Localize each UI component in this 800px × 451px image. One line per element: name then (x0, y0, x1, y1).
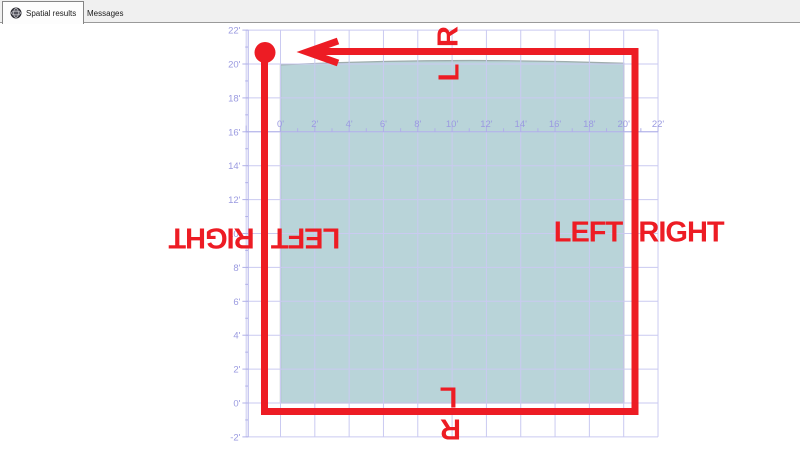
tab-messages-label: Messages (87, 9, 123, 18)
svg-text:20': 20' (618, 119, 631, 130)
svg-text:12': 12' (480, 119, 493, 130)
ring-side-label-left-outside: RIGHT (169, 223, 254, 252)
svg-text:20': 20' (228, 60, 241, 71)
svg-text:8': 8' (233, 263, 240, 274)
globe-icon (10, 7, 22, 19)
svg-text:4': 4' (346, 119, 353, 130)
svg-text:6': 6' (380, 119, 387, 130)
svg-text:6': 6' (233, 297, 240, 308)
svg-text:0': 0' (277, 119, 284, 130)
start-point-dot (255, 42, 276, 63)
svg-text:14': 14' (228, 161, 241, 172)
svg-text:18': 18' (228, 93, 241, 104)
svg-text:4': 4' (233, 331, 240, 342)
ring-side-label-bottom-inside: L (441, 382, 458, 411)
svg-text:12': 12' (228, 195, 241, 206)
svg-text:16': 16' (549, 119, 562, 130)
svg-text:18': 18' (583, 119, 596, 130)
svg-text:22': 22' (652, 119, 665, 130)
svg-text:8': 8' (414, 119, 421, 130)
results-tab-bar: Spatial results Messages (0, 0, 800, 23)
svg-text:2': 2' (311, 119, 318, 130)
tab-spatial-results-label: Spatial results (26, 9, 76, 18)
svg-text:2': 2' (233, 365, 240, 376)
ring-side-label-left-inside: LEFT (272, 223, 341, 252)
svg-text:10': 10' (446, 119, 459, 130)
ring-side-label-right-outside: RIGHT (638, 219, 723, 248)
ring-side-label-top-outside: R (435, 27, 464, 47)
svg-text:22': 22' (228, 26, 241, 37)
ring-side-label-right-inside: LEFT (554, 219, 623, 248)
tab-spatial-results[interactable]: Spatial results (2, 1, 84, 24)
svg-text:14': 14' (515, 119, 528, 130)
ring-side-label-bottom-outside: R (441, 414, 461, 443)
svg-text:0': 0' (233, 399, 240, 410)
ring-side-label-top-inside: L (436, 65, 465, 82)
svg-text:16': 16' (228, 127, 241, 138)
svg-text:-2': -2' (230, 432, 240, 443)
spatial-results-viewport[interactable]: 0'2'4'6'8'10'12'14'16'18'20'22' 22'20'18… (0, 0, 800, 446)
